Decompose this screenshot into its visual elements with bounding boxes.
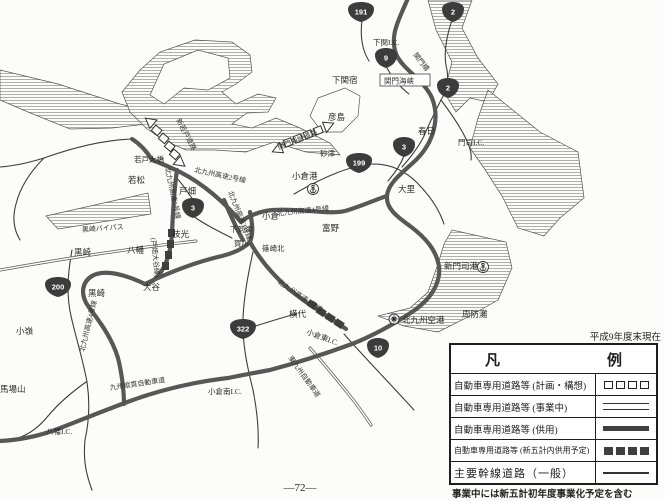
label-yokoshiro: 横代 xyxy=(289,309,307,319)
label-moji-ic: 門司I.C. xyxy=(458,138,484,147)
label-tomino: 富野 xyxy=(322,223,340,233)
label-shinmoji-port: 新門司港 xyxy=(444,261,479,271)
road-r3-tobata-east xyxy=(193,216,232,238)
shield-number: 3 xyxy=(402,143,406,152)
label-wakato-ohashi: 若戸大橋 xyxy=(134,154,164,164)
shield-number: 9 xyxy=(384,54,388,63)
label-tobata-otani-line: (戸畑大谷線) xyxy=(149,237,162,278)
shield-r199: 199 xyxy=(346,153,372,173)
shinmoji-port-anchor xyxy=(478,262,489,273)
scanned-map-page: 191 2 9 2 3 199 3 200 xyxy=(0,0,665,501)
shield-r200: 200 xyxy=(45,277,71,297)
legend-title-right: 例 xyxy=(607,349,622,370)
legend-row-general: 主要幹線道路（一般） xyxy=(451,462,656,483)
label-yahata-ic: 八幡I.C. xyxy=(46,426,72,436)
shield-number: 322 xyxy=(237,325,250,334)
label-kagawa: 賀川 xyxy=(234,238,249,248)
island-hikoshima xyxy=(310,88,360,132)
label-kokuraminami-ic: 小倉南I.C. xyxy=(208,386,242,396)
legend-footnote: 事業中には新五計初年度事業化予定を含む xyxy=(452,486,664,500)
road-r322 xyxy=(243,252,258,448)
shield-r322: 322 xyxy=(230,319,256,339)
sea-dokai-bay xyxy=(46,193,151,229)
label-kitakyushu-airport: 北九州空港 xyxy=(402,315,445,325)
thick-line-symbol xyxy=(595,418,656,439)
thin-line-symbol xyxy=(595,462,656,483)
legend-row-label: 自動車専用道路等 (供用) xyxy=(451,418,595,439)
filled-squares-symbol xyxy=(595,440,656,461)
label-shimonoseki-ic: 下関I.C. xyxy=(373,38,399,47)
shield-number: 2 xyxy=(446,84,450,93)
legend-box: 凡 例 自動車専用道路等 (計画・構想) 自動車専用道路等 (事業中) 自動車専… xyxy=(449,343,658,485)
legend-row-planned: 自動車専用道路等 (計画・構想) xyxy=(451,374,656,396)
shield-number: 200 xyxy=(52,283,65,292)
shield-r191: 191 xyxy=(348,2,374,22)
label-shimoitozu: 下到津 xyxy=(230,225,253,234)
label-kanmon-kaikyo-box: 関門海峡 xyxy=(380,74,430,86)
label-shinozakikita: 篠崎北 xyxy=(262,243,285,253)
road-r191-link xyxy=(361,20,369,61)
label-kokurahigashi-ic: 小倉東I.C. xyxy=(305,326,340,347)
label-hikoshima: 彦島 xyxy=(328,112,346,122)
road-west-curve xyxy=(14,158,44,240)
label-kosoku2: 北九州高速2号線 xyxy=(194,165,247,185)
shield-number: 2 xyxy=(451,8,455,17)
label-suonada: 周防灘 xyxy=(462,309,488,319)
shield-number: 191 xyxy=(355,8,368,17)
legend-row-label: 自動車専用道路等 (計画・構想) xyxy=(451,374,595,395)
legend-row-label: 自動車専用道路等 (事業中) xyxy=(451,396,595,417)
page-number: ―72― xyxy=(240,482,360,494)
label-kasuga: 春日 xyxy=(418,126,435,136)
legend-row-fifth-plan: 自動車専用道路等 (新五計内供用予定) xyxy=(451,440,656,462)
legend-row-under-construction: 自動車専用道路等 (事業中) xyxy=(451,396,656,418)
open-squares-symbol xyxy=(595,374,656,395)
label-tobata: 戸畑 xyxy=(179,186,196,196)
legend-title-left: 凡 xyxy=(485,349,500,370)
label-wakamatsu: 若松 xyxy=(128,175,146,185)
legend-row-in-service: 自動車専用道路等 (供用) xyxy=(451,418,656,440)
label-kanmon-bridge: 関門橋 xyxy=(411,51,431,73)
sea-east-moji xyxy=(470,90,584,236)
double-line-symbol xyxy=(595,396,656,417)
road-wakamatsu-west xyxy=(0,139,132,167)
label-yahata: 八幡 xyxy=(127,245,145,255)
survey-date-note: 平成9年度末現在 xyxy=(590,329,661,343)
shield-r3b: 3 xyxy=(182,198,204,218)
road-r200 xyxy=(68,250,92,490)
shield-number: 10 xyxy=(374,344,382,353)
shield-r9: 9 xyxy=(375,48,397,68)
shield-r3a: 3 xyxy=(393,137,415,157)
legend-title: 凡 例 xyxy=(451,345,656,374)
legend-row-label: 自動車専用道路等 (新五計内供用予定) xyxy=(451,440,595,461)
label-kanmon-kaikyo: 関門海峡 xyxy=(384,76,414,86)
label-babayama: 馬場山 xyxy=(0,384,26,394)
shield-number: 199 xyxy=(353,159,366,168)
label-kyushu-judan: 九州縦貫自動車道 xyxy=(109,375,166,392)
road-kosoku4-otani-link xyxy=(145,242,250,284)
shield-r10: 10 xyxy=(367,338,389,358)
label-komine: 小嶺 xyxy=(16,326,34,336)
label-kurosaki-1: 黒崎 xyxy=(74,247,92,257)
airport-icon xyxy=(389,314,399,324)
label-kurosaki-2: 黒崎 xyxy=(88,288,106,298)
route-shields: 191 2 9 2 3 199 3 200 xyxy=(45,2,464,358)
label-otani: 大谷 xyxy=(143,282,161,292)
legend-row-label: 主要幹線道路（一般） xyxy=(451,462,595,483)
label-edamitsu: 枝光 xyxy=(172,229,190,239)
label-shimonoseki-shuku: 下関宿 xyxy=(332,75,358,85)
label-kosoku4-east: 北九州高速4号線 xyxy=(276,204,329,218)
label-sunatsu: 砂津 xyxy=(320,148,335,158)
kokura-port-anchor xyxy=(308,184,319,195)
label-dairi: 大里 xyxy=(398,184,416,194)
label-kokura-port: 小倉港 xyxy=(292,171,318,181)
shield-number: 3 xyxy=(191,204,195,213)
